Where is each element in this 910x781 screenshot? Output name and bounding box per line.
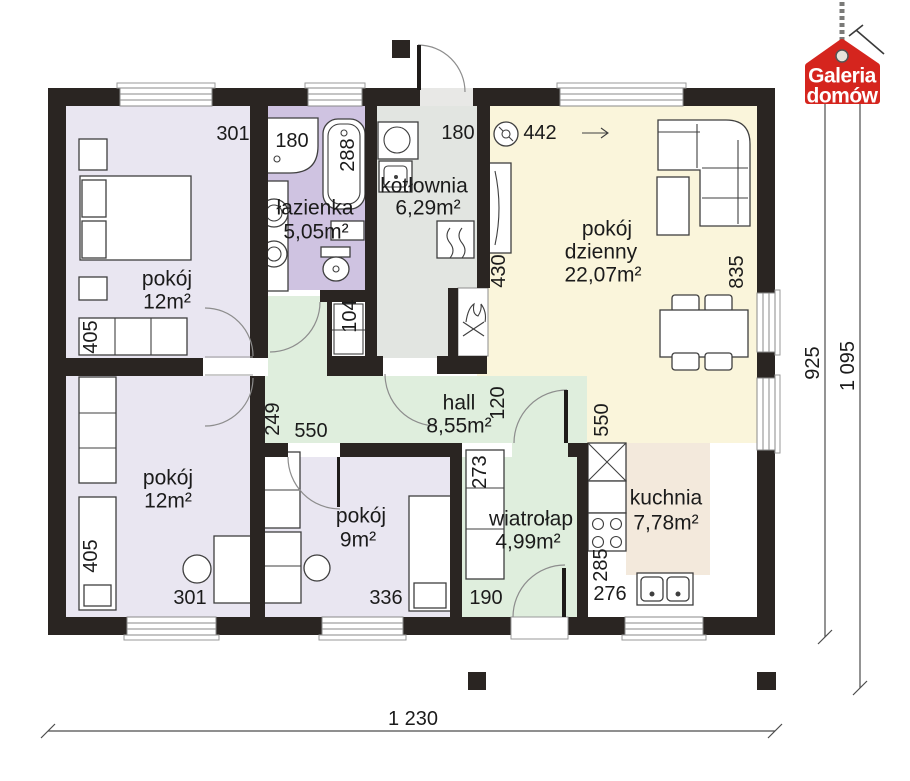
dining-chair — [705, 353, 732, 370]
dim-kitchen-width: 276 — [593, 583, 626, 605]
dim-bedroom-bottom-width: 301 — [173, 587, 206, 609]
wardrobe — [79, 377, 116, 483]
room-area-boiler-room: 6,29m² — [395, 197, 460, 220]
wall-segment — [757, 450, 775, 635]
floor-plan-page: Galeria domów pokój 12m² łazienka 5,05m²… — [0, 0, 910, 781]
dim-living-window: 835 — [726, 255, 748, 288]
dining-chair — [672, 353, 699, 370]
room-area-bedroom-bottom: 12m² — [144, 490, 192, 513]
drain — [650, 592, 655, 597]
kitchen-counter — [588, 481, 626, 513]
floor-boiler-room-lower — [377, 288, 448, 358]
room-area-kitchen: 7,78m² — [633, 512, 698, 535]
cabinet — [79, 139, 107, 170]
furnace — [437, 221, 474, 258]
wall-segment — [448, 288, 458, 356]
marker-square — [392, 40, 410, 58]
room-area-bathroom: 5,05m² — [283, 221, 348, 244]
wall-segment — [253, 443, 288, 457]
door-arc-boiler-entrance — [418, 45, 465, 92]
chair — [183, 555, 211, 583]
window — [557, 83, 686, 106]
room-label-bedroom-small: pokój — [336, 505, 386, 528]
room-area-bedroom-small: 9m² — [340, 529, 376, 552]
chair — [304, 555, 330, 581]
drain — [676, 592, 681, 597]
wall-segment — [48, 358, 203, 376]
toilet-bowl — [323, 257, 349, 281]
room-label-kitchen: kuchnia — [630, 487, 703, 510]
room-label-boiler-room: kotłownia — [380, 175, 468, 198]
room-area-bedroom-top: 12m² — [143, 291, 191, 314]
room-label-bathroom: łazienka — [276, 197, 353, 220]
dim-vestibule-width: 190 — [469, 587, 502, 609]
dim-bathtub: 288 — [337, 138, 359, 171]
coffee-table — [657, 177, 689, 235]
dim-boiler-width: 180 — [441, 122, 474, 144]
window — [757, 290, 780, 355]
toilet-tank — [321, 247, 350, 257]
wall-segment — [212, 88, 308, 106]
dim-overall-depth-total: 1 095 — [837, 341, 859, 391]
wall-segment — [450, 457, 462, 617]
room-label-living-2: dzienny — [565, 241, 638, 264]
room-area-living: 22,07m² — [564, 264, 641, 287]
dim-corridor: 249 — [262, 402, 284, 435]
wall-segment — [473, 88, 560, 106]
wall-segment — [757, 352, 775, 378]
room-label-living-1: pokój — [582, 218, 632, 241]
vent-icon — [494, 122, 518, 146]
wall-segment — [362, 88, 420, 106]
dim-hall-width: 550 — [294, 420, 327, 442]
room-area-vestibule: 4,99m² — [495, 531, 560, 554]
window — [124, 617, 219, 640]
door-leaf — [337, 457, 340, 507]
window — [622, 617, 706, 640]
logo-line2: domów — [807, 85, 879, 108]
wall-segment — [437, 356, 487, 374]
desk — [214, 536, 252, 603]
marker-square — [468, 672, 486, 690]
door-leaf — [417, 45, 421, 90]
wardrobe — [262, 532, 301, 603]
window — [305, 83, 365, 106]
brand-logo: Galeria domów — [807, 2, 885, 108]
door-leaf — [564, 390, 568, 443]
wall-segment — [216, 617, 322, 635]
floor-plan-svg: Galeria domów pokój 12m² łazienka 5,05m²… — [0, 0, 910, 781]
dim-bedroom-top-depth: 405 — [80, 320, 102, 353]
dim-vestibule-wardrobe: 273 — [469, 455, 491, 488]
room-label-hall: hall — [443, 392, 476, 415]
dim-bedroom-small-width: 336 — [369, 587, 402, 609]
window — [117, 83, 215, 106]
wall-segment — [577, 457, 588, 617]
room-label-bedroom-bottom: pokój — [143, 467, 193, 490]
window — [757, 375, 780, 453]
room-label-vestibule: wiatrołap — [488, 508, 573, 531]
dim-bedroom-bottom-depth: 405 — [80, 539, 102, 572]
room-area-hall: 8,55m² — [426, 415, 491, 438]
wall-segment — [568, 443, 588, 457]
wall-segment — [340, 443, 462, 457]
wall-segment — [250, 106, 268, 358]
wall-segment — [365, 106, 377, 376]
wall-segment — [327, 356, 383, 376]
dim-shower: 180 — [275, 130, 308, 152]
dining-table — [660, 310, 748, 357]
pillow — [82, 180, 106, 217]
sink-bowl — [667, 577, 689, 601]
pillow — [84, 585, 111, 606]
dim-overall-width: 1 230 — [388, 708, 438, 730]
entry-threshold — [511, 617, 568, 639]
dim-kitchen-opening: 550 — [591, 403, 613, 436]
door-leaf — [562, 568, 566, 617]
dim-living-vent: 442 — [523, 122, 556, 144]
room-label-bedroom-top: pokój — [142, 268, 192, 291]
dim-kitchen-counter-depth: 285 — [590, 548, 612, 581]
dim-hall-passage: 120 — [487, 386, 509, 419]
marker-square — [757, 672, 776, 690]
wall-segment — [568, 617, 625, 635]
pillow — [82, 221, 106, 258]
dim-overall-depth: 925 — [802, 346, 824, 379]
wall-segment — [327, 302, 332, 356]
dim-closet: 104 — [339, 299, 361, 332]
radiator — [489, 163, 511, 253]
wall-segment — [757, 88, 775, 293]
grommet-icon — [836, 50, 848, 62]
dim-bedroom-top-width: 301 — [216, 123, 249, 145]
wall-segment — [403, 617, 512, 635]
nightstand — [79, 277, 107, 300]
window — [319, 617, 406, 640]
sink-bowl — [641, 577, 663, 601]
floor-hall-door-gap — [512, 443, 568, 457]
floor-corridor — [268, 296, 332, 376]
pillow — [414, 583, 446, 608]
dim-radiator: 430 — [488, 254, 510, 287]
